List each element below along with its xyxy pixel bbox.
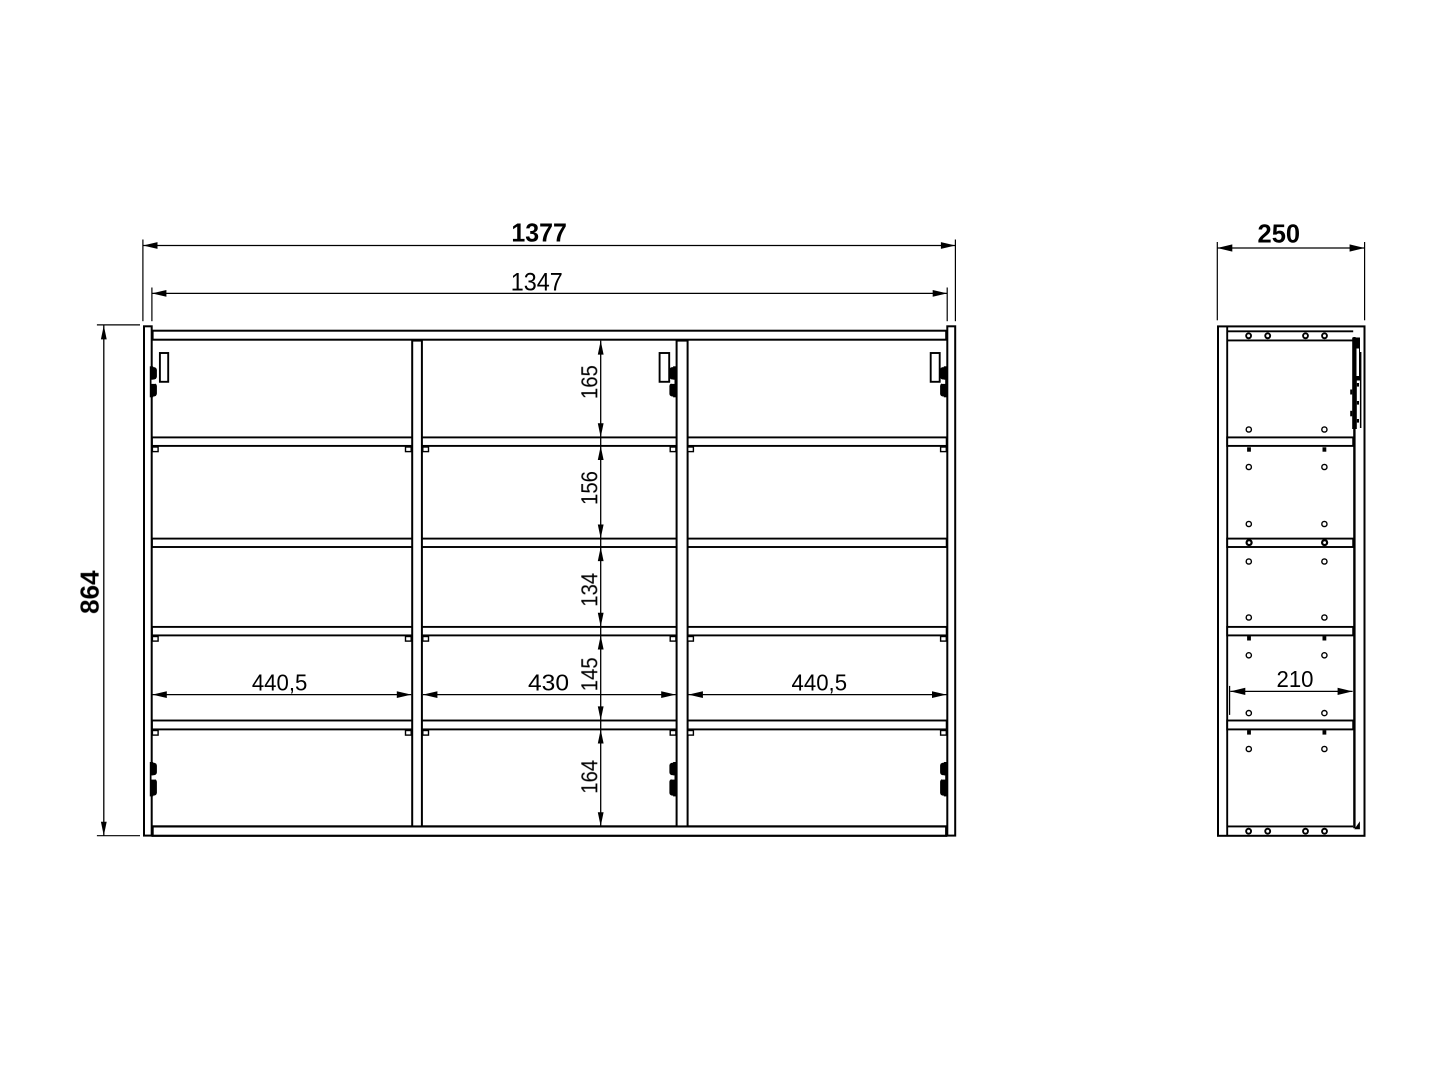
svg-text:134: 134 (576, 573, 602, 607)
svg-text:250: 250 (1258, 219, 1301, 249)
svg-text:1377: 1377 (511, 218, 567, 248)
svg-text:430: 430 (528, 669, 569, 695)
svg-text:440,5: 440,5 (792, 669, 848, 695)
svg-text:156: 156 (576, 471, 602, 505)
svg-text:210: 210 (1277, 666, 1314, 692)
svg-text:1347: 1347 (511, 269, 563, 297)
svg-text:164: 164 (576, 760, 602, 794)
svg-text:165: 165 (576, 365, 602, 399)
svg-text:864: 864 (75, 570, 105, 614)
svg-text:145: 145 (576, 657, 602, 691)
svg-text:440,5: 440,5 (252, 669, 308, 695)
